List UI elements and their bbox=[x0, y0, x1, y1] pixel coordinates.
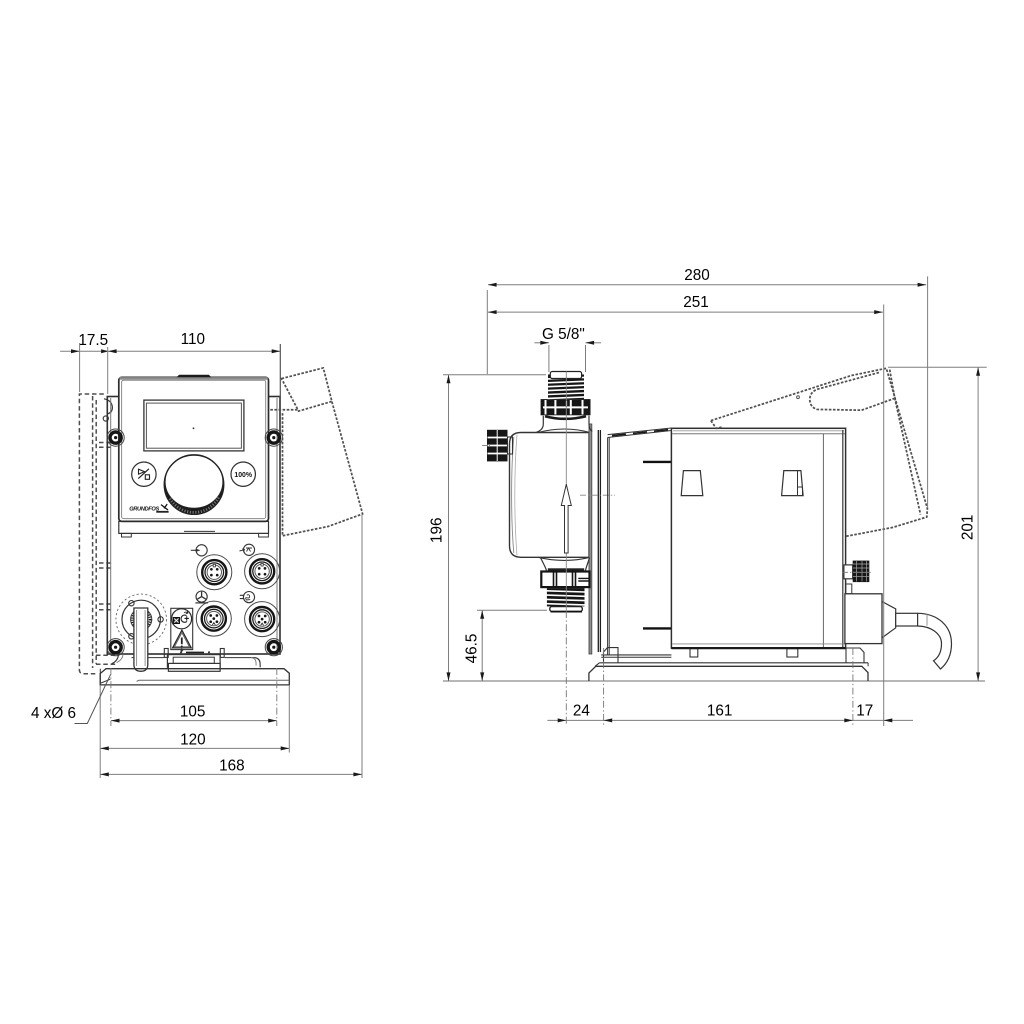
svg-text:17.5: 17.5 bbox=[78, 332, 108, 349]
svg-text:17: 17 bbox=[856, 702, 873, 719]
svg-text:251: 251 bbox=[683, 294, 709, 311]
svg-text:105: 105 bbox=[180, 704, 206, 721]
svg-text:110: 110 bbox=[181, 331, 205, 348]
svg-text:280: 280 bbox=[684, 267, 710, 284]
svg-text:100%: 100% bbox=[234, 472, 252, 479]
svg-text:24: 24 bbox=[573, 702, 591, 719]
svg-text:201: 201 bbox=[960, 515, 977, 541]
svg-text:120: 120 bbox=[180, 732, 206, 749]
svg-text:168: 168 bbox=[219, 758, 245, 775]
svg-text:46.5: 46.5 bbox=[464, 634, 481, 664]
svg-text:GRUNDFOS: GRUNDFOS bbox=[129, 507, 159, 513]
svg-text:161: 161 bbox=[707, 702, 733, 719]
svg-text:4 xØ 6: 4 xØ 6 bbox=[31, 705, 76, 722]
svg-text:196: 196 bbox=[429, 518, 446, 544]
svg-text:G 5/8": G 5/8" bbox=[542, 326, 585, 343]
